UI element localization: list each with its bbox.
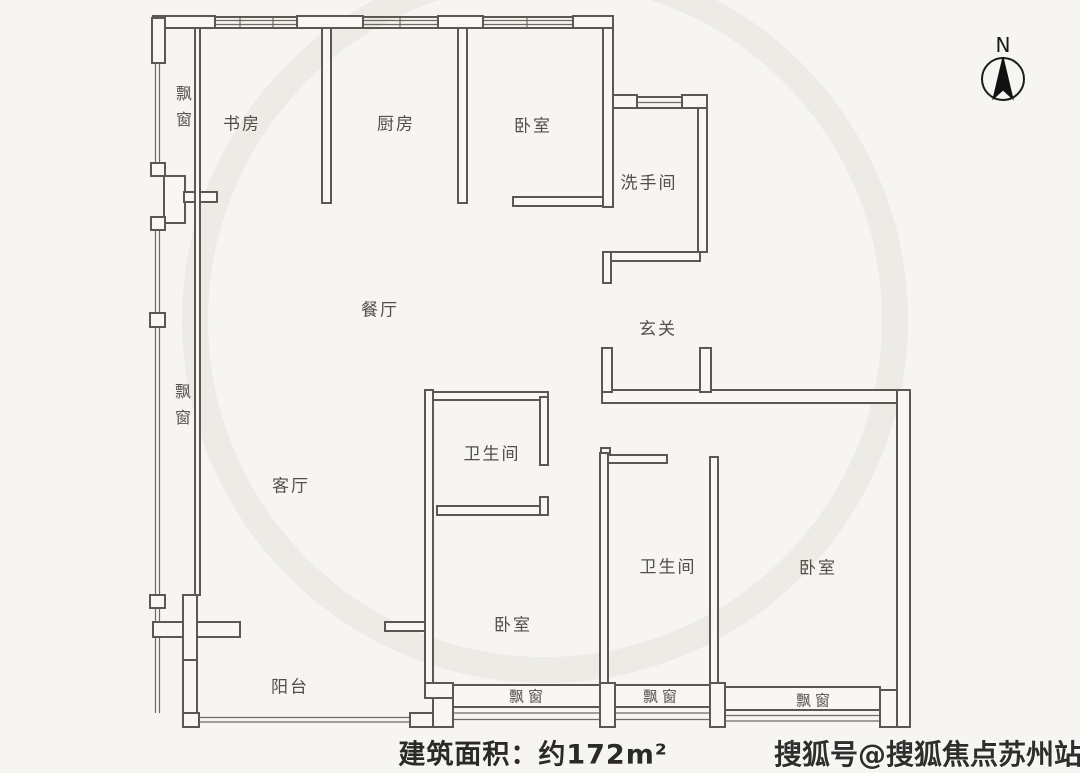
room-label-kitchen: 厨房: [377, 110, 415, 135]
bay-window-label-left-mid: 飘窗: [169, 383, 193, 435]
room-label-living: 客厅: [272, 472, 310, 497]
compass-icon: [982, 57, 1024, 100]
room-label-bedroom-top: 卧室: [514, 112, 552, 137]
watermark-text: 搜狐号@搜狐焦点苏州站: [774, 733, 1080, 773]
bay-window-label-bottom-right: 飘窗: [796, 690, 834, 711]
bay-window-label-left-top: 飘窗: [170, 85, 194, 137]
room-label-washroom: 洗手间: [621, 169, 678, 194]
bay-window-label-bottom-center: 飘窗: [509, 686, 547, 707]
room-label-bedroom-right: 卧室: [799, 554, 837, 579]
faint-circle-watermark: [195, 0, 895, 670]
room-label-dining: 餐厅: [361, 296, 399, 321]
room-label-balcony: 阳台: [271, 673, 309, 698]
room-label-bedroom-center: 卧室: [494, 611, 532, 636]
room-label-bathroom-main: 卫生间: [464, 440, 521, 465]
bay-window-label-bottom-middle: 飘窗: [643, 686, 681, 707]
room-label-entry: 玄关: [639, 315, 677, 340]
room-label-study: 书房: [223, 110, 261, 135]
room-label-bathroom-second: 卫生间: [640, 553, 697, 578]
area-text: 建筑面积：约172m²: [398, 733, 667, 772]
compass-n-label: N: [996, 33, 1011, 57]
floor-plan: 书房 厨房 卧室 洗手间 餐厅 玄关 卫生间 客厅 卫生间 卧室 卧室 阳台 飘…: [0, 0, 1080, 771]
